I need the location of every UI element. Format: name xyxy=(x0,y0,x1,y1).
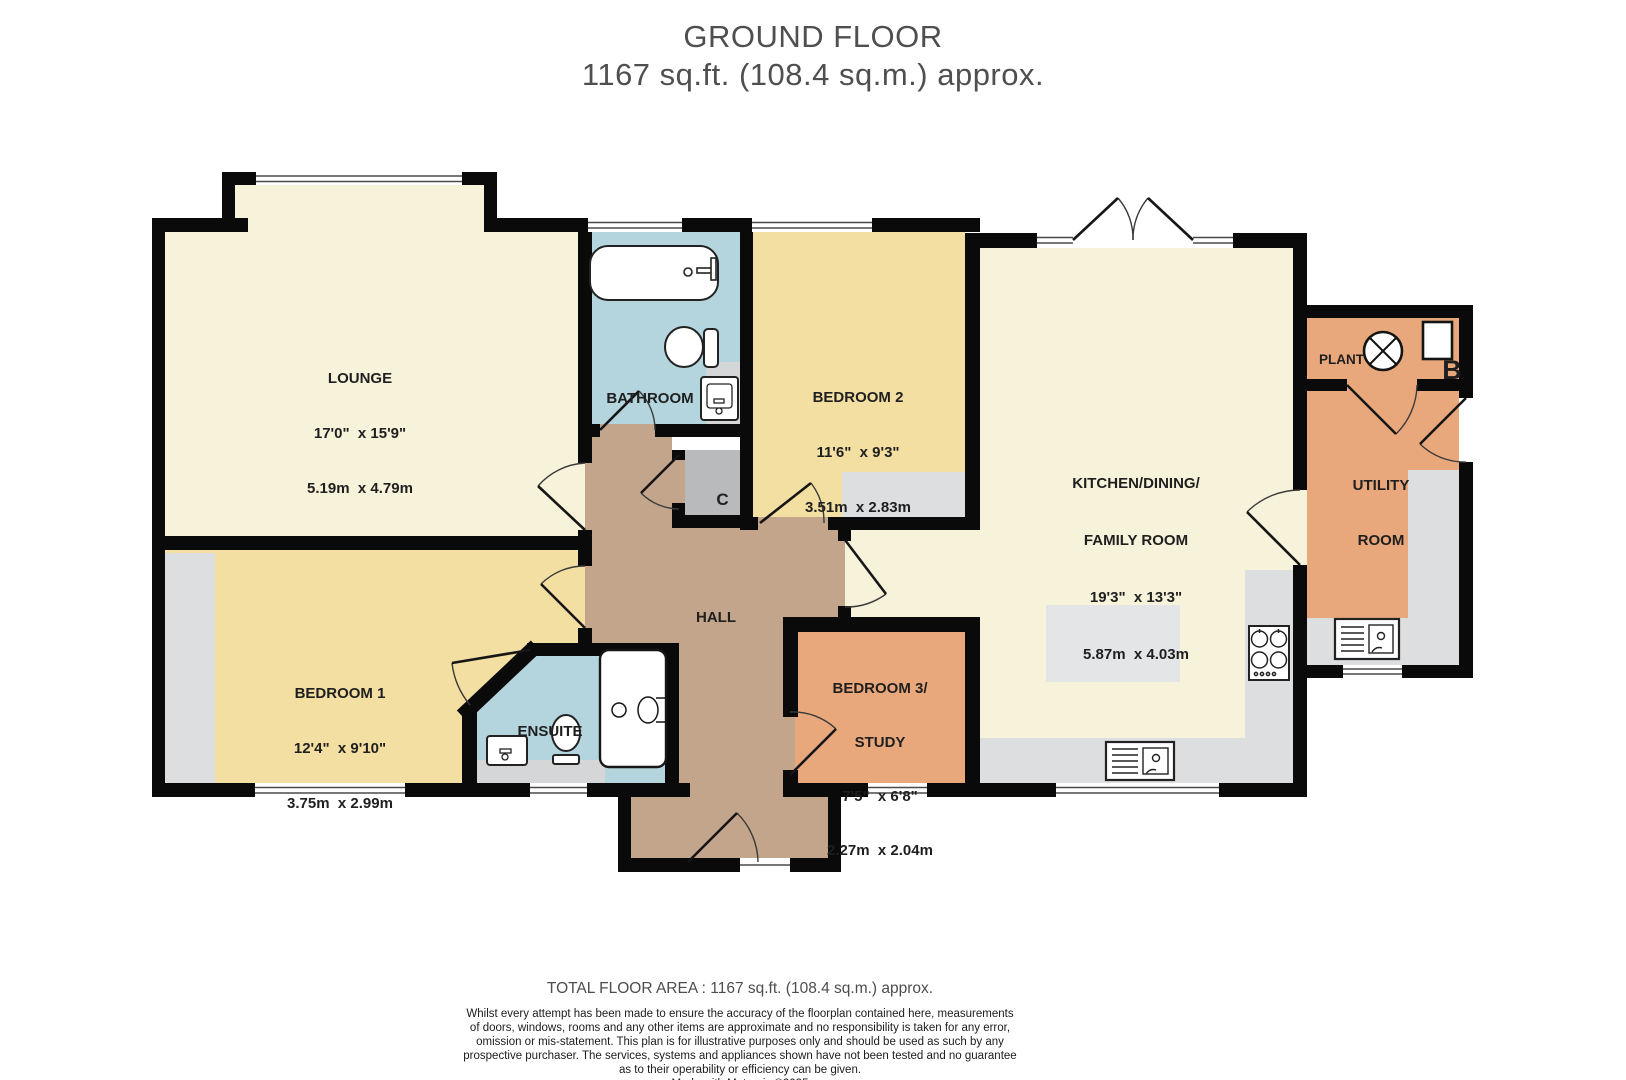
room-bedroom3-label: BEDROOM 3/ STUDY 7'5" x 6'8" 2.27m x 2.0… xyxy=(827,644,933,896)
bay-window xyxy=(256,172,462,185)
room-dims-metric: 5.87m x 4.03m xyxy=(1072,644,1200,665)
disclaimer-line: Whilst every attempt has been made to en… xyxy=(0,1007,1480,1021)
room-name-2: ROOM xyxy=(1353,531,1410,550)
room-plant-label: PLANT xyxy=(1304,337,1364,382)
room-bedroom1-label: BEDROOM 1 12'4" x 9'10" 3.75m x 2.99m xyxy=(287,648,393,849)
ensuite-window xyxy=(530,783,587,797)
room-name: ENSUITE xyxy=(517,722,582,741)
room-dims-metric: 5.19m x 4.79m xyxy=(307,479,413,498)
ensuite-shower-icon xyxy=(600,650,666,767)
room-dims-imperial: 7'5" x 6'8" xyxy=(827,788,933,806)
room-dims-imperial: 11'6" x 9'3" xyxy=(805,443,911,462)
kitchen-window xyxy=(1056,783,1219,797)
room-dims-metric: 3.51m x 2.83m xyxy=(805,498,911,517)
room-name: BEDROOM 2 xyxy=(805,388,911,407)
front-door-gap xyxy=(740,858,790,872)
total-floor-area: TOTAL FLOOR AREA : 1167 sq.ft. (108.4 sq… xyxy=(0,980,1480,998)
bathtub-icon xyxy=(590,246,718,300)
room-utility-label: UTILITY ROOM xyxy=(1353,440,1410,586)
kitchen-sink-icon xyxy=(1106,742,1174,780)
bathroom-window xyxy=(588,218,682,232)
room-name-2: STUDY xyxy=(827,734,933,752)
room-name: LOUNGE xyxy=(307,369,413,388)
room-dims-imperial: 19'3" x 13'3" xyxy=(1072,587,1200,608)
kitchen-sidelight-right xyxy=(1193,233,1233,248)
room-dims-metric: 3.75m x 2.99m xyxy=(287,794,393,813)
room-name-2: FAMILY ROOM xyxy=(1072,530,1200,551)
cupboard-label: C xyxy=(697,470,728,530)
bedroom2-window xyxy=(752,218,872,232)
room-name: BEDROOM 3/ xyxy=(827,680,933,698)
room-kitchen-label: KITCHEN/DINING/ FAMILY ROOM 19'3" x 13'3… xyxy=(1072,437,1200,701)
utility-window xyxy=(1343,665,1402,678)
room-bathroom-label: BATHROOM xyxy=(606,353,693,444)
footer: TOTAL FLOOR AREA : 1167 sq.ft. (108.4 sq… xyxy=(0,980,1480,1080)
boiler-label: B xyxy=(1412,324,1462,417)
room-hall-label: HALL xyxy=(696,572,736,663)
disclaimer-line: as to their operability or efficiency ca… xyxy=(0,1063,1480,1077)
room-ensuite-label: ENSUITE xyxy=(517,686,582,777)
room-name: BEDROOM 1 xyxy=(287,684,393,703)
room-lounge-label: LOUNGE 17'0" x 15'9" 5.19m x 4.79m xyxy=(307,333,413,534)
disclaimer-line: omission or mis-statement. This plan is … xyxy=(0,1035,1480,1049)
extractor-fan-icon xyxy=(1364,332,1402,370)
hob-icon xyxy=(1249,626,1289,680)
room-dims-imperial: 17'0" x 15'9" xyxy=(307,424,413,443)
room-name: BATHROOM xyxy=(606,389,693,408)
room-bedroom2-label: BEDROOM 2 11'6" x 9'3" 3.51m x 2.83m xyxy=(805,352,911,553)
room-dims-imperial: 12'4" x 9'10" xyxy=(287,739,393,758)
kitchen-sidelight-left xyxy=(1037,233,1073,248)
disclaimer-line: prospective purchaser. The services, sys… xyxy=(0,1049,1480,1063)
utility-sink-icon xyxy=(1335,619,1399,659)
room-name: UTILITY xyxy=(1353,476,1410,495)
bathroom-sink-icon xyxy=(701,377,738,420)
room-name: KITCHEN/DINING/ xyxy=(1072,473,1200,494)
disclaimer-line: of doors, windows, rooms and any other i… xyxy=(0,1021,1480,1035)
floorplan-page: GROUND FLOOR 1167 sq.ft. (108.4 sq.m.) a… xyxy=(0,0,1626,1080)
room-name: HALL xyxy=(696,608,736,627)
room-dims-metric: 2.27m x 2.04m xyxy=(827,842,933,860)
